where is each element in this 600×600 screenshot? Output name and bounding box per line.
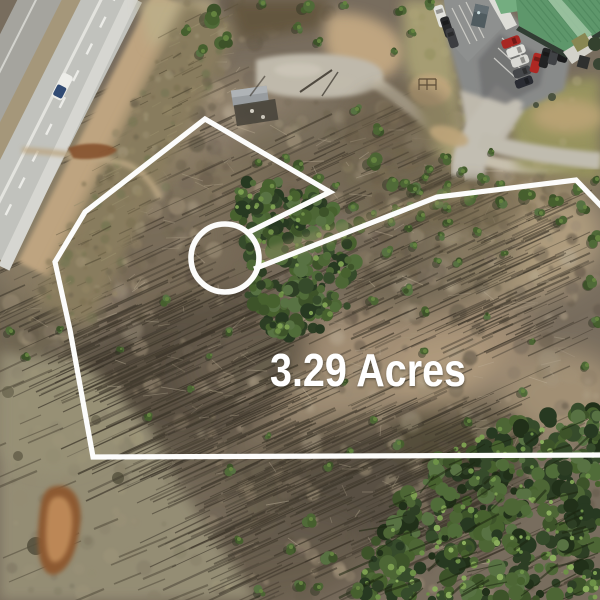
svg-text:3.29 Acres: 3.29 Acres <box>270 344 466 396</box>
